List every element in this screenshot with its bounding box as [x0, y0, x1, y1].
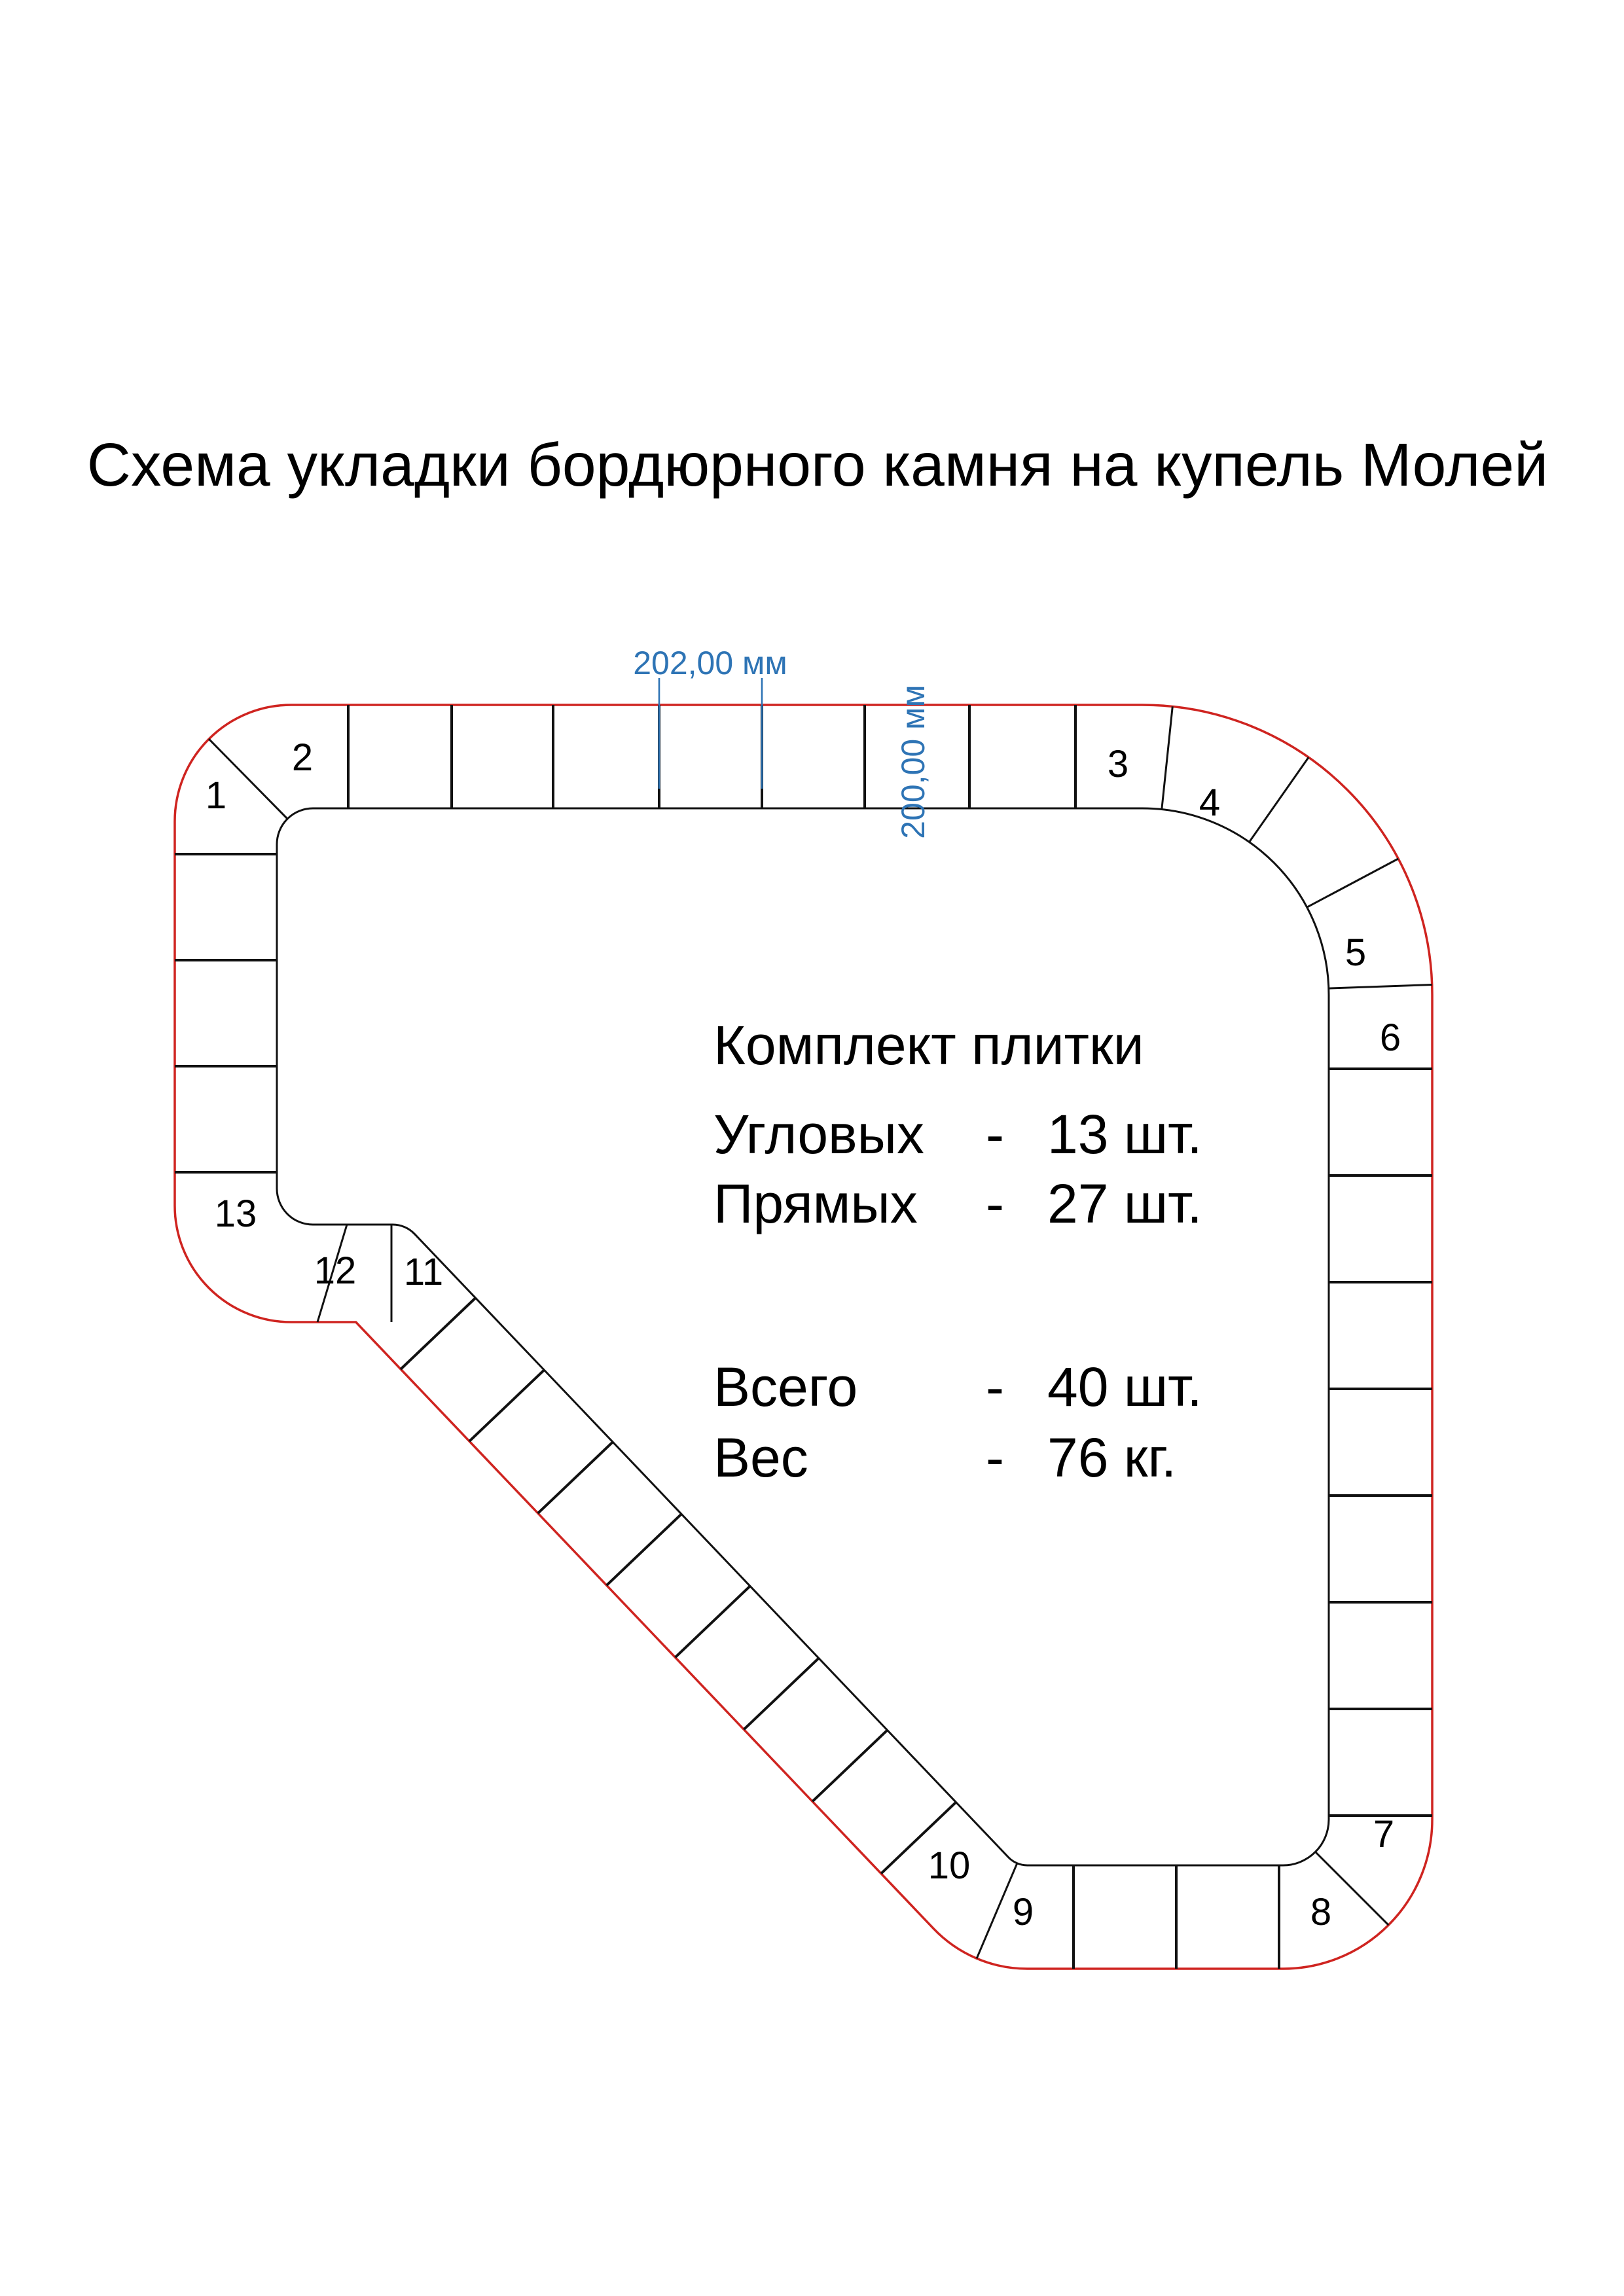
legend-row-value: 40 шт.: [1047, 1356, 1202, 1418]
tile-number-12: 12: [314, 1249, 357, 1292]
tile-number-6: 6: [1380, 1016, 1401, 1059]
tile-number-11: 11: [404, 1251, 443, 1293]
legend-row-weight: Вес - 76 кг.: [713, 1427, 1176, 1488]
width-dimension: 202,00 мм: [633, 645, 787, 789]
tile-number-7: 7: [1373, 1813, 1394, 1856]
tile-number-8: 8: [1310, 1891, 1331, 1933]
tile-layout-diagram: Схема укладки бордюрного камня на купель…: [0, 0, 1624, 2296]
height-dimension-label: 200,00 мм: [895, 685, 931, 839]
width-dimension-label: 202,00 мм: [633, 645, 787, 681]
legend-row-value: 27 шт.: [1047, 1173, 1202, 1234]
legend-row-value: 13 шт.: [1047, 1103, 1202, 1165]
tile-number-4: 4: [1199, 781, 1220, 824]
corner-tile-numbers: 1 2 3 4 5 6 7 8 9 10 11 12 13: [206, 736, 1401, 1933]
tile-number-13: 13: [215, 1193, 257, 1235]
legend-row-corner-tiles: Угловых - 13 шт.: [713, 1103, 1202, 1165]
tile-number-9: 9: [1013, 1891, 1034, 1933]
legend-row-label: Вес: [713, 1427, 808, 1488]
legend-row-label: Прямых: [713, 1173, 918, 1234]
legend-row-straight-tiles: Прямых - 27 шт.: [713, 1173, 1202, 1234]
legend-row-value: 76 кг.: [1047, 1427, 1176, 1488]
tile-number-10: 10: [928, 1844, 971, 1887]
right-edge-tile-separators: [1329, 1069, 1432, 1816]
legend-row-dash: -: [986, 1427, 1004, 1488]
legend-row-label: Угловых: [713, 1103, 924, 1165]
corner-tile-dividers: [209, 706, 1432, 1958]
legend-row-dash: -: [986, 1103, 1004, 1165]
left-edge-tile-separators: [175, 854, 277, 1172]
tile-number-2: 2: [292, 736, 313, 779]
legend-row-label: Всего: [713, 1356, 857, 1418]
legend-heading: Комплект плитки: [713, 1014, 1144, 1076]
pool-outer-boundary: [175, 705, 1432, 1969]
tile-number-5: 5: [1345, 931, 1366, 974]
tile-number-1: 1: [206, 774, 226, 817]
tile-number-3: 3: [1108, 743, 1128, 785]
page-title: Схема укладки бордюрного камня на купель…: [87, 431, 1548, 499]
top-edge-tile-separators: [348, 705, 1075, 808]
legend-row-total: Всего - 40 шт.: [713, 1356, 1202, 1418]
diagonal-edge-tile-separators: [401, 1298, 956, 1873]
bottom-edge-tile-separators: [1074, 1865, 1279, 1969]
legend-row-dash: -: [986, 1356, 1004, 1418]
legend-row-dash: -: [986, 1173, 1004, 1234]
page: Схема укладки бордюрного камня на купель…: [0, 0, 1624, 2296]
legend: Комплект плитки Угловых - 13 шт. Прямых …: [713, 1014, 1202, 1488]
